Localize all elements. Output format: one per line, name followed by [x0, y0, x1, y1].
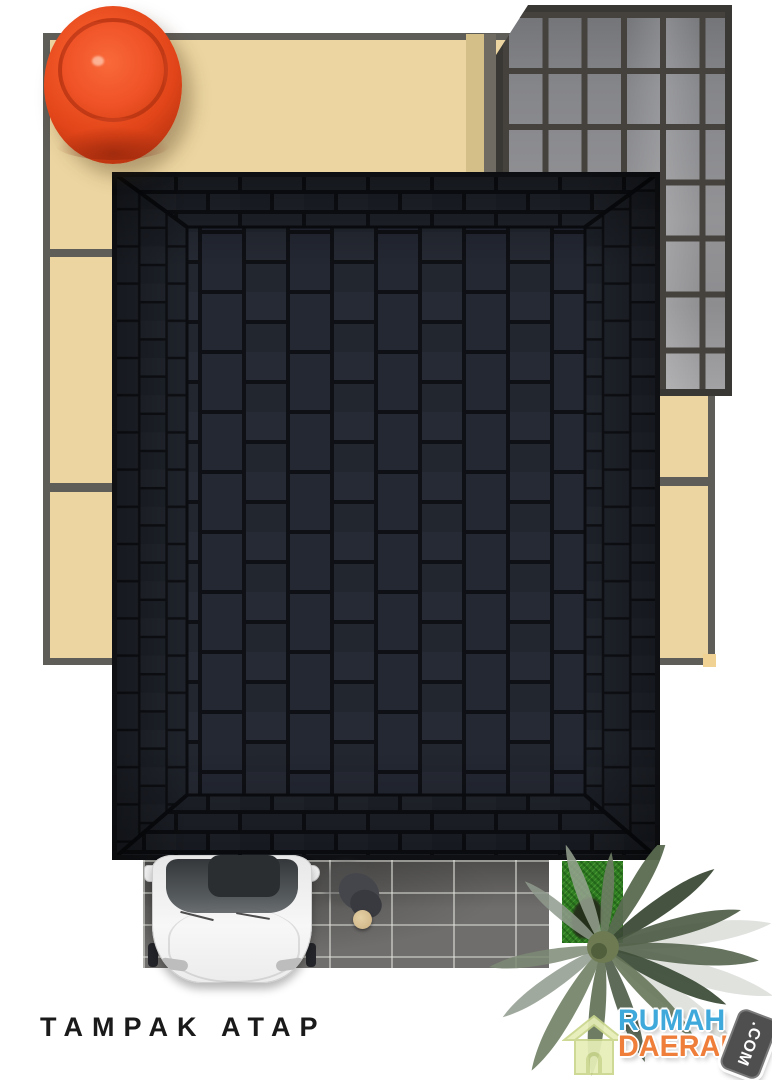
car-hood-contour: [168, 907, 300, 983]
car-sunroof: [208, 855, 280, 897]
wall-divider-right: [653, 477, 715, 486]
canopy-edge-shadow: [484, 34, 496, 174]
person-top-view: [330, 868, 392, 936]
shadowed-slab-strip: [466, 34, 484, 174]
watermark-logo: RUMAH DAERAH .COM: [562, 1008, 772, 1080]
water-tank-highlight: [92, 56, 104, 66]
water-tank-lid: [58, 18, 168, 122]
car-top-view: [146, 853, 318, 986]
car-headlight-right: [275, 957, 304, 972]
roof-shading-horizontal: [112, 172, 660, 860]
car-body: [152, 855, 312, 983]
person-head: [353, 910, 372, 929]
wall-divider-left-2: [43, 483, 119, 492]
house-icon: [562, 1014, 626, 1076]
corner-notch: [703, 654, 716, 667]
shingle-roof: [112, 172, 660, 860]
water-tank: [44, 6, 182, 164]
roof-plan-rendering: TAMPAK ATAP RUMAH DAERAH .COM: [0, 0, 772, 1080]
water-tank-rim: [54, 126, 172, 160]
page-title: TAMPAK ATAP: [40, 1012, 326, 1043]
watermark-com-label: .COM: [732, 1019, 765, 1068]
wall-divider-left-1: [43, 249, 119, 257]
palm-crown-core: [591, 943, 607, 959]
